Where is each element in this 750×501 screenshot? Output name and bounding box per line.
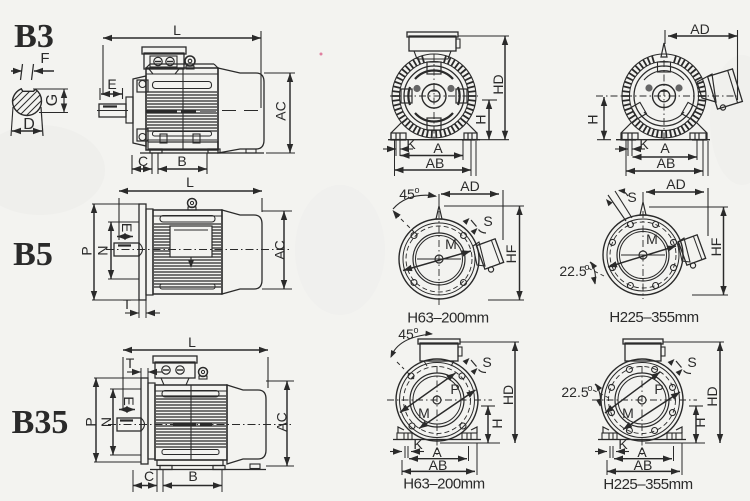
svg-text:H: H [692,417,708,427]
svg-text:N: N [95,245,111,255]
svg-text:AD: AD [690,21,709,37]
svg-text:o: o [414,185,419,195]
svg-text:HD: HD [490,74,506,94]
svg-text:K: K [413,436,423,452]
svg-text:M: M [445,236,457,252]
svg-text:M: M [622,405,634,421]
svg-text:H225–355mm: H225–355mm [609,309,698,326]
svg-text:E: E [119,223,135,232]
svg-text:H63–200mm: H63–200mm [407,310,488,327]
svg-text:AB: AB [634,457,653,473]
svg-text:M: M [418,405,430,421]
svg-text:B5: B5 [13,236,53,273]
svg-text:AD: AD [460,178,479,194]
svg-text:AB: AB [657,155,676,171]
svg-text:H63–200mm: H63–200mm [403,476,484,493]
svg-text:H225–355mm: H225–355mm [603,476,692,493]
svg-text:S: S [627,189,636,205]
svg-text:HF: HF [503,245,519,264]
svg-text:L: L [173,22,181,38]
svg-text:22.5: 22.5 [559,263,586,279]
svg-text:S: S [482,354,491,370]
svg-text:AC: AC [272,240,288,259]
svg-text:AC: AC [273,101,289,120]
svg-text:K: K [639,136,649,152]
svg-text:HF: HF [708,238,724,257]
svg-text:o: o [584,262,589,272]
svg-text:o: o [413,325,418,335]
svg-text:AB: AB [426,155,445,171]
svg-text:L: L [186,174,194,190]
svg-text:o: o [587,383,592,393]
svg-text:45: 45 [398,326,414,342]
svg-text:B35: B35 [12,404,69,441]
svg-text:K: K [406,136,416,152]
svg-text:K: K [618,436,628,452]
svg-text:AB: AB [429,457,448,473]
svg-text:L: L [188,334,196,350]
svg-text:S: S [483,213,492,229]
svg-text:AC: AC [274,412,290,431]
svg-text:A: A [433,140,443,156]
svg-text:HD: HD [704,386,720,406]
svg-text:B: B [188,468,197,484]
svg-text:H: H [489,418,505,428]
svg-text:G: G [44,94,61,106]
svg-text:H: H [585,114,601,124]
svg-text:A: A [660,140,670,156]
svg-text:H: H [473,114,489,124]
svg-text:HD: HD [500,385,516,405]
svg-text:T: T [123,296,132,312]
svg-text:F: F [40,50,49,67]
svg-text:B: B [177,153,186,169]
svg-text:C: C [138,153,148,169]
svg-text:AD: AD [666,176,685,192]
svg-text:P: P [654,381,663,397]
svg-text:T: T [126,355,135,371]
svg-text:22.5: 22.5 [561,384,588,400]
svg-text:S: S [687,354,696,370]
svg-text:P: P [79,246,95,255]
svg-text:P: P [450,381,459,397]
svg-text:N: N [98,417,114,427]
svg-text:C: C [144,468,154,484]
svg-text:E: E [121,396,137,405]
svg-text:M: M [646,231,658,247]
svg-text:45: 45 [399,186,415,202]
svg-text:E: E [107,76,116,92]
svg-text:P: P [83,417,99,426]
svg-text:D: D [23,116,35,133]
